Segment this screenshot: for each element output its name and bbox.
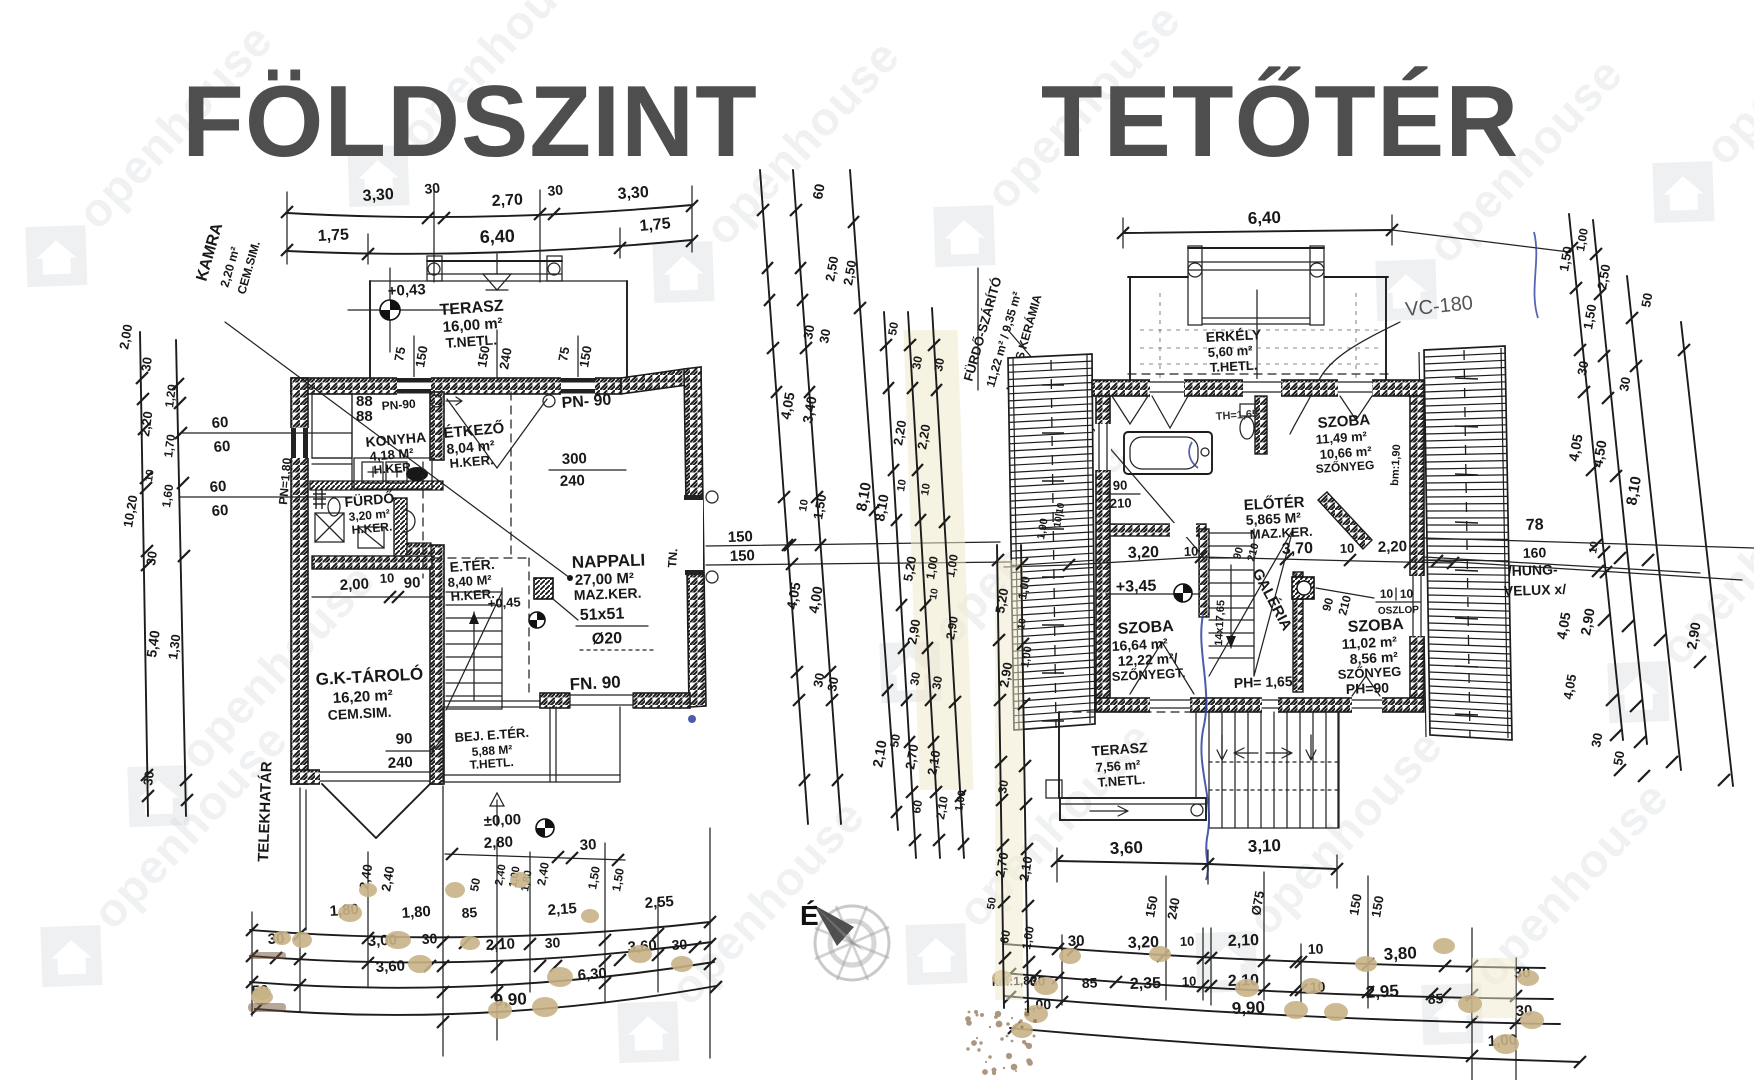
svg-text:OSZLOP: OSZLOP (1378, 605, 1420, 617)
svg-text:2,70: 2,70 (491, 191, 523, 210)
svg-text:3,60: 3,60 (1109, 838, 1143, 858)
svg-text:50: 50 (887, 733, 903, 749)
svg-text:FN. 90: FN. 90 (569, 672, 621, 694)
svg-text:PH=90: PH=90 (1346, 679, 1390, 697)
svg-text:60: 60 (997, 929, 1013, 945)
svg-text:3,30: 3,30 (362, 186, 394, 205)
svg-text:2,00: 2,00 (339, 575, 369, 594)
svg-text:30: 30 (800, 324, 817, 341)
svg-text:10: 10 (895, 478, 909, 492)
svg-text:30: 30 (824, 676, 841, 693)
svg-text:30: 30 (143, 550, 160, 566)
svg-text:30: 30 (816, 328, 833, 345)
svg-text:30: 30 (1068, 932, 1085, 950)
svg-text:30: 30 (1588, 732, 1605, 749)
svg-text:51x51: 51x51 (580, 605, 625, 624)
svg-text:60: 60 (909, 799, 925, 815)
svg-text:30: 30 (138, 356, 155, 372)
svg-text:10: 10 (797, 498, 811, 512)
svg-text:ERKÉLY: ERKÉLY (1205, 326, 1262, 345)
svg-text:10: 10 (1184, 544, 1199, 559)
svg-text:1,75: 1,75 (317, 226, 349, 245)
svg-text:3,80: 3,80 (1383, 943, 1417, 964)
svg-text:10: 10 (379, 570, 394, 586)
svg-text:30: 30 (909, 355, 925, 371)
svg-text:150: 150 (730, 547, 756, 565)
svg-text:90: 90 (1113, 478, 1128, 493)
svg-text:50: 50 (1610, 750, 1627, 767)
svg-text:2,95: 2,95 (1365, 981, 1399, 1002)
svg-text:75: 75 (555, 346, 572, 363)
svg-text:+0,43: +0,43 (387, 281, 426, 300)
svg-text:30: 30 (544, 934, 561, 951)
svg-text:30: 30 (1616, 376, 1633, 393)
svg-text:2,10: 2,10 (485, 935, 515, 954)
svg-text:30: 30 (579, 836, 597, 854)
svg-text:10: 10 (1340, 541, 1355, 556)
svg-text:30: 30 (929, 675, 945, 691)
svg-text:50: 50 (467, 877, 483, 893)
svg-text:2,80: 2,80 (483, 833, 513, 852)
svg-text:TELEKHATÁR: TELEKHATÁR (255, 761, 276, 862)
svg-text:PN- 90: PN- 90 (561, 392, 612, 412)
svg-text:30: 30 (931, 357, 947, 373)
svg-text:10: 10 (1308, 940, 1324, 957)
svg-text:14x17,65: 14x17,65 (1213, 600, 1227, 646)
svg-text:VELUX x/: VELUX x/ (1504, 581, 1567, 599)
svg-text:50: 50 (1638, 292, 1655, 309)
svg-text:160: 160 (1523, 544, 1547, 561)
svg-text:3,10: 3,10 (1247, 836, 1281, 856)
svg-text:±0,00: ±0,00 (483, 811, 521, 830)
svg-text:150: 150 (728, 528, 754, 546)
svg-text:H.KER.: H.KER. (450, 586, 495, 604)
svg-text:85: 85 (461, 904, 478, 921)
svg-text:60: 60 (809, 182, 827, 200)
svg-text:3,20: 3,20 (1128, 544, 1160, 562)
svg-text:10: 10 (1182, 974, 1197, 989)
svg-text:2,35: 2,35 (1130, 975, 1162, 993)
svg-text:300: 300 (562, 450, 588, 468)
svg-text:10: 10 (1400, 587, 1414, 601)
svg-text:60: 60 (211, 502, 229, 520)
svg-text:210: 210 (1110, 495, 1132, 511)
svg-text:Ø20: Ø20 (592, 630, 623, 648)
svg-text:1,80: 1,80 (401, 903, 431, 922)
svg-text:30: 30 (421, 930, 438, 947)
svg-text:+3,45: +3,45 (1116, 578, 1157, 596)
svg-text:3,70: 3,70 (1282, 540, 1314, 558)
svg-text:PH= 1,65: PH= 1,65 (1234, 673, 1293, 691)
svg-text:30: 30 (995, 779, 1011, 795)
svg-text:85: 85 (1082, 974, 1098, 991)
svg-text:T.HETL.: T.HETL. (1209, 358, 1257, 375)
svg-text:3,30: 3,30 (617, 184, 649, 203)
svg-text:1,75: 1,75 (639, 215, 672, 235)
svg-text:/HUNG-: /HUNG- (1508, 561, 1559, 579)
svg-text:240: 240 (560, 472, 586, 490)
svg-text:240: 240 (387, 754, 413, 772)
svg-text:75: 75 (391, 346, 408, 363)
svg-text:30: 30 (671, 936, 688, 953)
svg-text:30: 30 (140, 770, 157, 786)
svg-text:2,15: 2,15 (547, 900, 577, 919)
svg-text:3,60: 3,60 (375, 957, 405, 976)
svg-text:30: 30 (1574, 360, 1591, 377)
svg-text:É: É (800, 900, 819, 931)
svg-text:9,90: 9,90 (1231, 998, 1265, 1018)
svg-text:PN-90: PN-90 (381, 397, 416, 413)
svg-text:30: 30 (424, 179, 441, 197)
svg-text:MAZ.KER.: MAZ.KER. (574, 585, 642, 603)
svg-text:10: 10 (1180, 934, 1195, 949)
svg-text:2,55: 2,55 (644, 893, 674, 912)
svg-text:10: 10 (143, 469, 157, 483)
svg-text:50: 50 (985, 896, 999, 910)
svg-text:60: 60 (213, 438, 231, 456)
svg-text:30: 30 (547, 181, 564, 199)
svg-text:50: 50 (885, 321, 901, 337)
svg-text:30: 30 (907, 671, 923, 687)
svg-text:10: 10 (919, 482, 933, 496)
svg-text:2,20: 2,20 (1378, 538, 1408, 556)
svg-text:90: 90 (395, 730, 413, 748)
svg-text:TETŐTÉR: TETŐTÉR (1041, 66, 1519, 178)
svg-text:TN.: TN. (665, 548, 680, 568)
svg-text:78: 78 (1526, 516, 1544, 534)
svg-text:6,40: 6,40 (479, 226, 515, 247)
svg-text:bm:1,90: bm:1,90 (1389, 444, 1403, 486)
svg-text:90: 90 (403, 574, 421, 592)
svg-text:6,30: 6,30 (577, 965, 607, 984)
svg-text:60: 60 (209, 478, 227, 496)
svg-text:60: 60 (211, 414, 229, 432)
svg-text:CEM.SIM.: CEM.SIM. (327, 704, 392, 723)
svg-text:FÖLDSZINT: FÖLDSZINT (182, 66, 758, 178)
svg-text:85: 85 (1427, 990, 1444, 1007)
svg-text:6,40: 6,40 (1247, 208, 1281, 228)
svg-text:NAPPALI: NAPPALI (571, 550, 645, 572)
svg-text:10: 10 (1380, 587, 1394, 601)
svg-text:88: 88 (356, 408, 373, 425)
svg-text:2,10: 2,10 (1228, 932, 1260, 950)
